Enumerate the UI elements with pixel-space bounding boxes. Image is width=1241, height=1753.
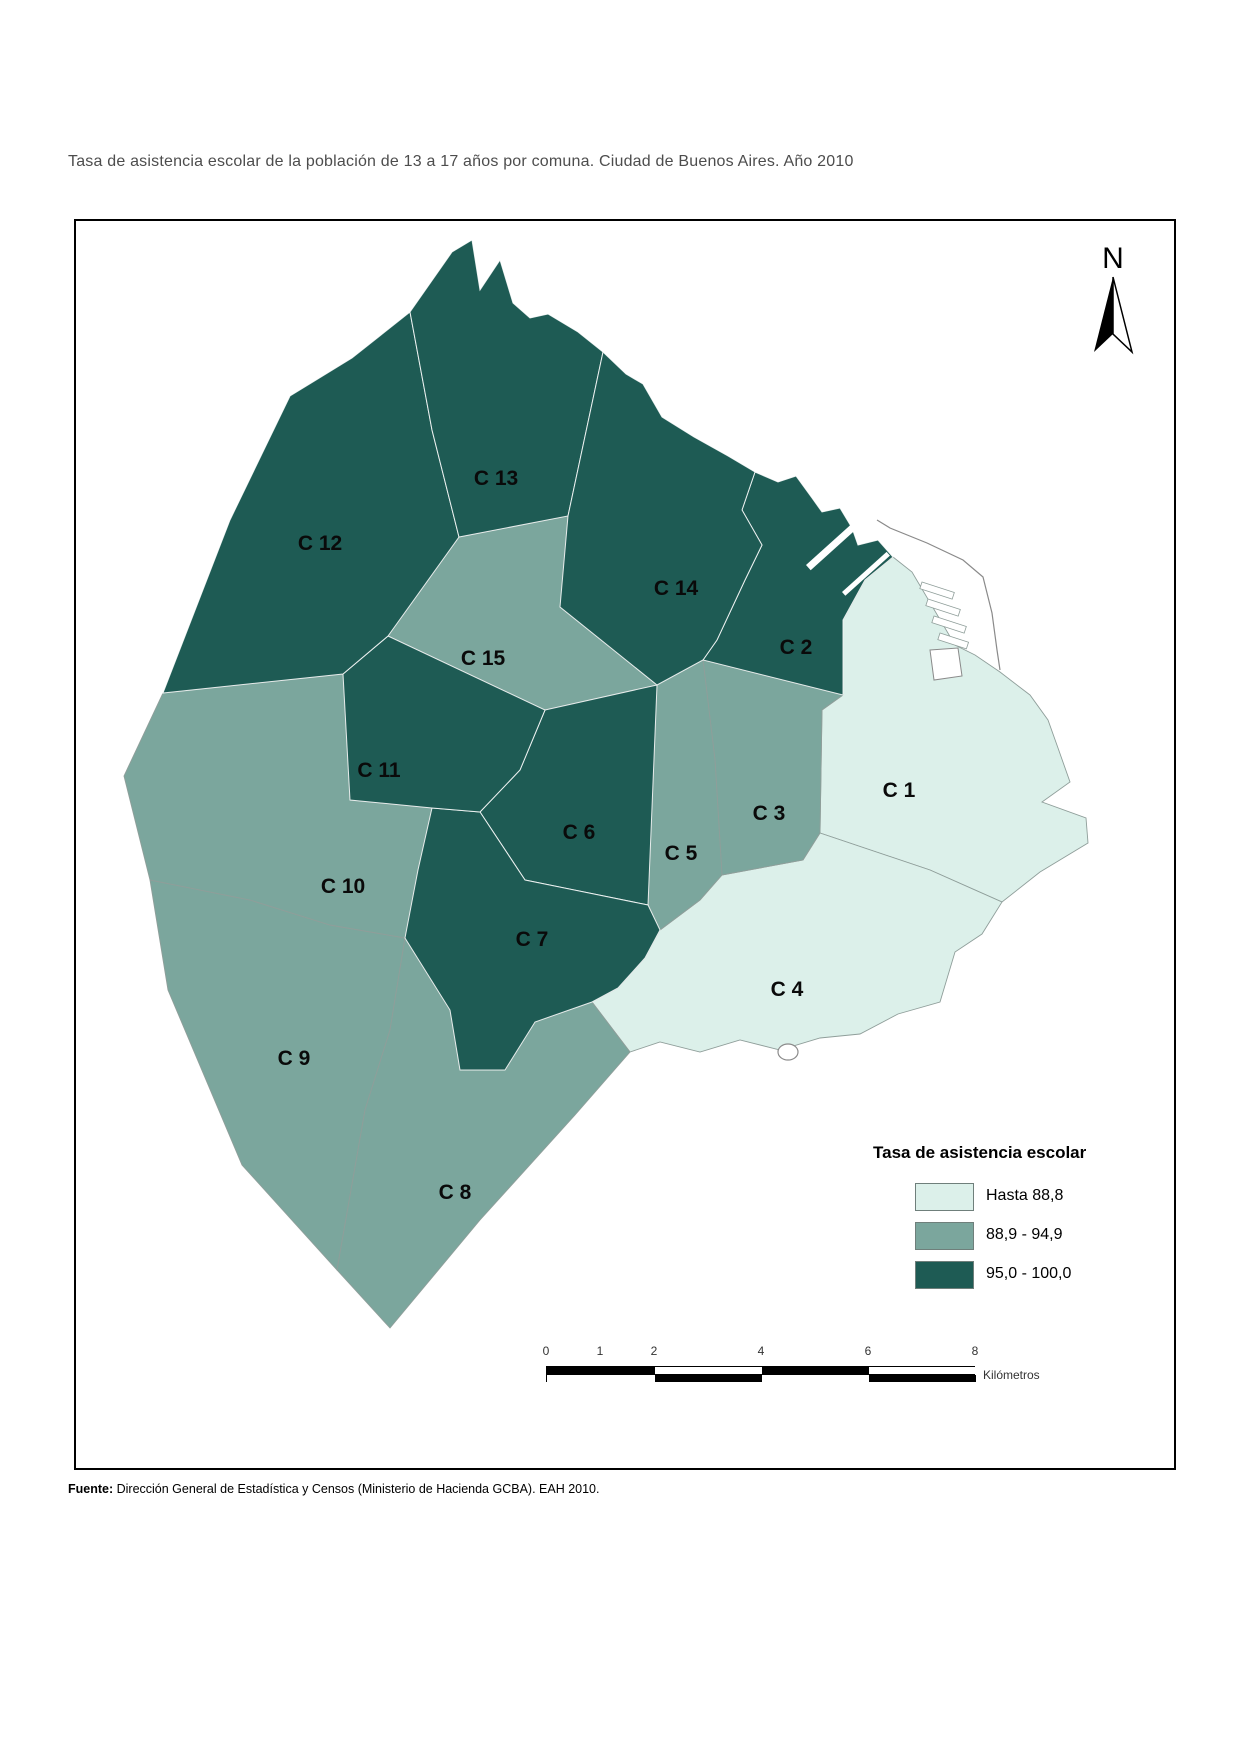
- scale-tick-0: 0: [543, 1344, 550, 1358]
- comuna-label-c1: C 1: [883, 779, 916, 802]
- comuna-label-c6: C 6: [563, 821, 596, 844]
- scale-tick-6: 6: [865, 1344, 872, 1358]
- dock-basin-icon: [930, 648, 962, 680]
- comuna-regions: [124, 240, 1088, 1328]
- comuna-label-c2: C 2: [780, 636, 813, 659]
- comuna-label-c14: C 14: [654, 577, 699, 600]
- legend-swatch-low: [915, 1183, 974, 1211]
- page: Tasa de asistencia escolar de la poblaci…: [0, 0, 1241, 1753]
- north-arrow-icon: N: [1094, 242, 1132, 352]
- scale-tick-labels: 0 1 2 4 6 8: [546, 1344, 975, 1359]
- comuna-label-c9: C 9: [278, 1047, 311, 1070]
- legend-title: Tasa de asistencia escolar: [873, 1143, 1086, 1163]
- legend-swatch-mid: [915, 1222, 974, 1250]
- scale-tick-8: 8: [972, 1344, 979, 1358]
- river-island-icon: [778, 1044, 798, 1060]
- legend-label-high: 95,0 - 100,0: [986, 1265, 1071, 1283]
- scale-tick-2: 2: [651, 1344, 658, 1358]
- source-prefix: Fuente:: [68, 1482, 113, 1496]
- scale-bar: [546, 1366, 975, 1382]
- scale-tick-4: 4: [758, 1344, 765, 1358]
- comuna-label-c8: C 8: [439, 1181, 472, 1204]
- legend-label-mid: 88,9 - 94,9: [986, 1226, 1063, 1244]
- comuna-label-c5: C 5: [665, 842, 698, 865]
- source-text: Dirección General de Estadística y Censo…: [113, 1482, 599, 1496]
- comuna-label-c12: C 12: [298, 532, 342, 555]
- comuna-label-c13: C 13: [474, 467, 518, 490]
- map-title: Tasa de asistencia escolar de la poblaci…: [68, 153, 854, 171]
- source-note: Fuente: Dirección General de Estadística…: [68, 1482, 599, 1496]
- comuna-label-c7: C 7: [516, 928, 549, 951]
- comuna-label-c3: C 3: [753, 802, 786, 825]
- legend-label-low: Hasta 88,8: [986, 1187, 1063, 1205]
- comuna-label-c10: C 10: [321, 875, 365, 898]
- comuna-label-c11: C 11: [357, 759, 401, 782]
- comuna-label-c4: C 4: [771, 978, 804, 1001]
- legend-swatch-high: [915, 1261, 974, 1289]
- scale-tick-1: 1: [597, 1344, 604, 1358]
- scale-unit-label: Kilómetros: [983, 1368, 1040, 1382]
- north-label: N: [1102, 242, 1124, 275]
- comuna-label-c15: C 15: [461, 647, 506, 670]
